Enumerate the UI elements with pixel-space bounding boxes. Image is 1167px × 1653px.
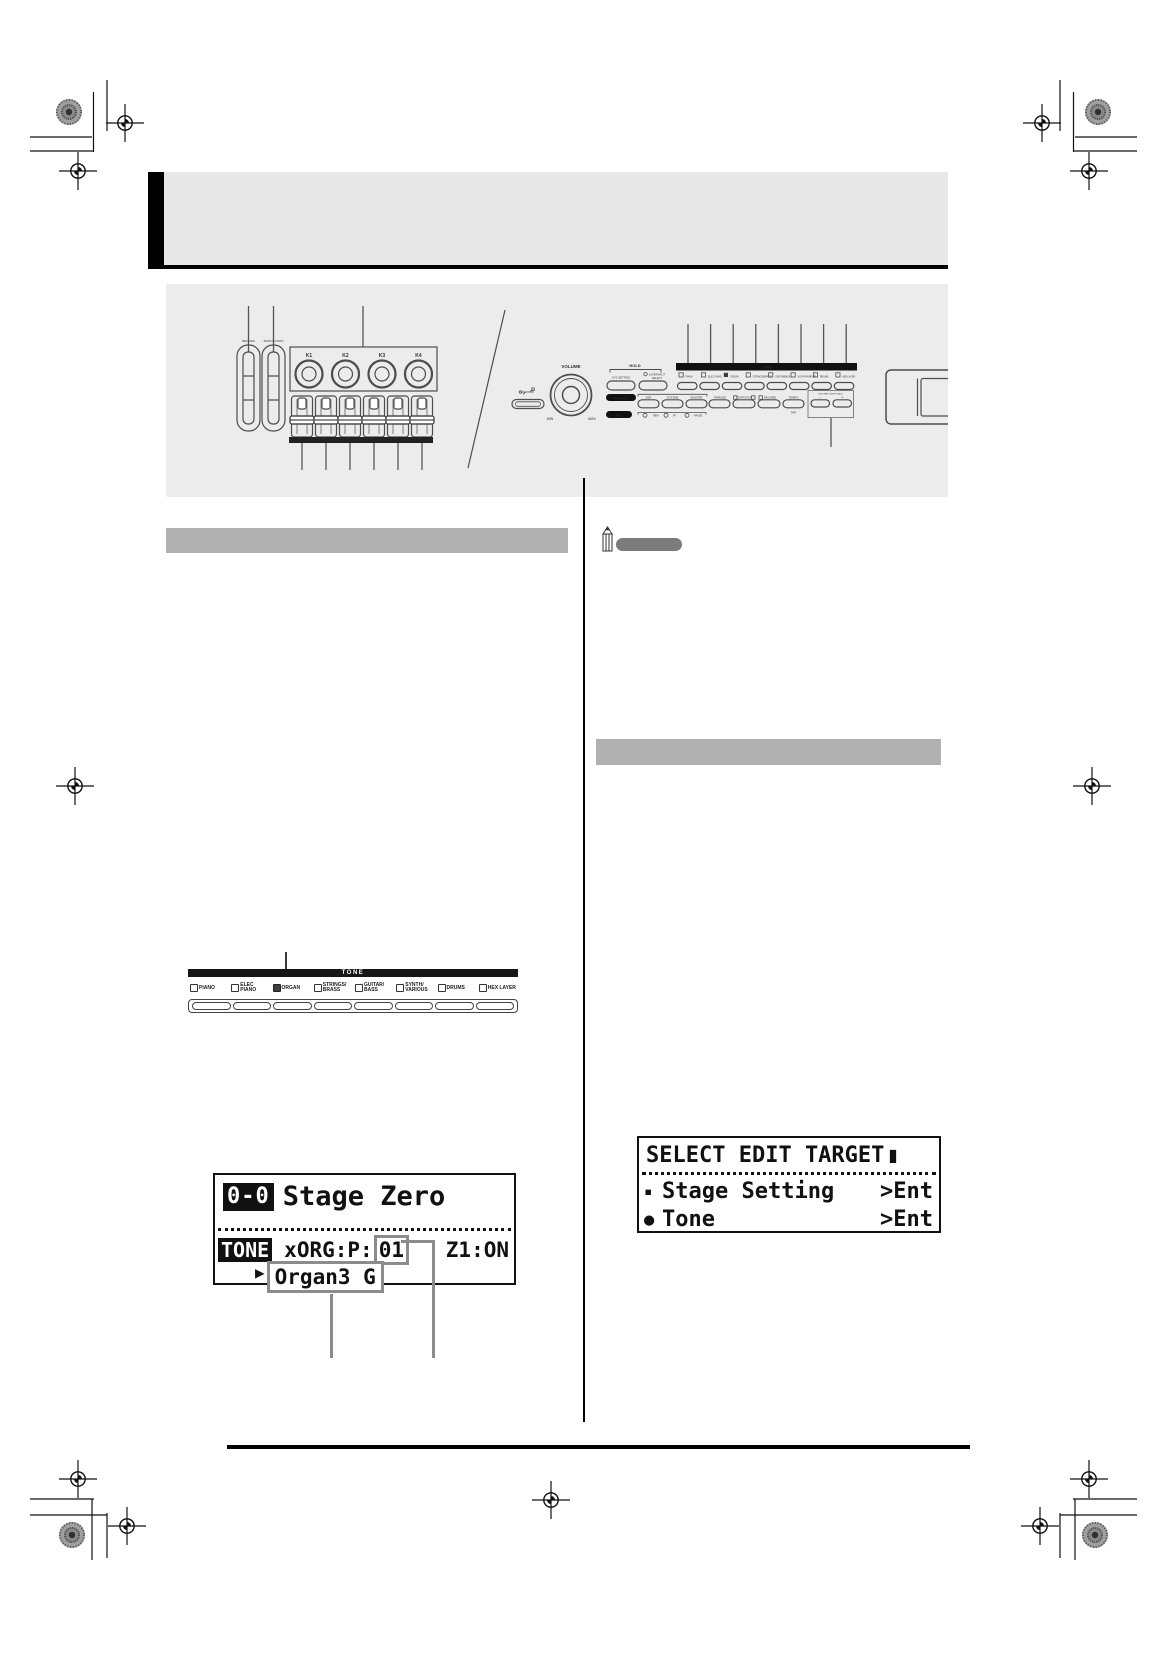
footer-rule [227, 1445, 970, 1449]
svg-text:TONE: TONE [763, 366, 772, 370]
regmark-mid-left [56, 767, 94, 805]
svg-text:PIANO: PIANO [686, 376, 693, 379]
lcd-tone-name-line: ▶ Organ3 G [255, 1261, 384, 1293]
usb-port [512, 388, 544, 409]
tone-label-elec-piano: ELECPIANO [229, 977, 270, 999]
svg-text:SELECT: SELECT [652, 376, 663, 380]
cursor-arrow: ▶ [255, 1261, 265, 1285]
note-label-bar [616, 538, 682, 551]
section-heading-left [166, 528, 568, 553]
volume-knob [551, 375, 592, 416]
svg-text:MODULATION: MODULATION [264, 339, 284, 343]
row-label: Stage Setting [662, 1179, 834, 1205]
led-checkbox [396, 984, 404, 992]
figure-callout-lines [249, 306, 847, 470]
tone-button [354, 1002, 393, 1010]
svg-text:SYSTEM: SYSTEM [667, 396, 679, 400]
led-checkbox [231, 984, 239, 992]
regmark-mid-right [1073, 767, 1111, 805]
tone-name-callout-box: Organ3 G [267, 1261, 384, 1293]
svg-text:FF: FF [673, 415, 677, 418]
tone-button [395, 1002, 434, 1010]
organ-led-on [724, 373, 728, 377]
zone-status: Z1:ON [446, 1238, 509, 1262]
tone-label-guitar-bass: GUITAR/BASS [353, 977, 394, 999]
svg-text:HOLD: HOLD [629, 363, 640, 368]
svg-text:BENDER: BENDER [242, 339, 255, 343]
edit-target-row-stage-setting: ▪ Stage Setting >Ent [644, 1179, 933, 1205]
svg-text:START/STOP: START/STOP [736, 397, 752, 400]
svg-text:K1: K1 [306, 353, 313, 359]
regmark-bottom-center [532, 1481, 570, 1519]
svg-text:REW: REW [653, 415, 659, 418]
svg-text:−: − [819, 396, 821, 400]
led-checkbox [355, 984, 363, 992]
callout-connector-v2 [330, 1294, 333, 1358]
tone-button [273, 1002, 312, 1010]
svg-text:SYS SETTING: SYS SETTING [612, 376, 631, 380]
chapter-header-tab [148, 172, 164, 265]
svg-text:PAUSE: PAUSE [694, 415, 703, 418]
lcd-title: SELECT EDIT TARGET▮ [646, 1143, 900, 1169]
led-checkbox [190, 984, 198, 992]
svg-text:TAP: TAP [791, 411, 797, 415]
modulation-wheel [262, 345, 285, 431]
svg-text:BALANCE: BALANCE [614, 396, 628, 400]
lcd-dotted-rule [218, 1228, 511, 1231]
block-cursor: ▮ [886, 1143, 899, 1168]
svg-text:EDIT/PART/STEP/TRACK: EDIT/PART/STEP/TRACK [819, 392, 844, 395]
column-divider [583, 478, 585, 1422]
svg-text:MIN: MIN [547, 417, 554, 421]
chapter-header-bar [148, 172, 948, 269]
tone-button [192, 1002, 231, 1010]
regmark-bottom-left [30, 1460, 146, 1560]
tone-button [233, 1002, 272, 1010]
tone-button [476, 1002, 515, 1010]
tone-strip-buttons [188, 999, 518, 1013]
row-marker: ▪ [644, 1179, 662, 1205]
lcd-dotted-rule [642, 1172, 936, 1175]
svg-text:K2: K2 [342, 353, 349, 359]
stage-number-badge: 0-0 [223, 1183, 274, 1211]
svg-text:+: + [841, 396, 843, 400]
stage-name: Stage Zero [283, 1182, 446, 1212]
row-action: >Ent [880, 1207, 933, 1233]
tone-strip-header: TONE [188, 969, 518, 977]
tone-label-synth-various: SYNTH/VARIOUS [394, 977, 435, 999]
tone-label-strings-brass: STRINGS/BRASS [312, 977, 353, 999]
tone-label-hex-layer: HEX LAYER [477, 977, 518, 999]
regmark-bottom-right [1021, 1460, 1137, 1560]
svg-text:K3: K3 [379, 353, 386, 359]
svg-text:MASTER: MASTER [691, 396, 703, 400]
edit-target-row-tone: ● Tone >Ent [644, 1207, 933, 1233]
tone-category: xORG:P: [284, 1238, 373, 1262]
tone-label-piano: PIANO [188, 977, 229, 999]
svg-text:K4: K4 [415, 353, 422, 359]
display-bezel [886, 370, 948, 424]
section-heading-right [596, 739, 941, 765]
svg-text:MAX: MAX [588, 417, 596, 421]
manual-page: BENDER MODULATION K1 K2 K3 K4 VOLUME MIN… [0, 0, 1167, 1653]
svg-text:ELEC PIANO: ELEC PIANO [708, 376, 722, 379]
row-marker-selected: ● [644, 1207, 662, 1233]
pencil-note-icon [599, 526, 616, 553]
svg-text:DSP: DSP [646, 396, 652, 400]
led-checkbox-on [273, 984, 281, 992]
tone-strip-labels: PIANO ELECPIANO ORGAN STRINGS/BRASS GUIT… [188, 977, 518, 999]
row-action: >Ent [880, 1179, 933, 1205]
regmark-top-right [1023, 80, 1137, 190]
svg-text:RECORD: RECORD [764, 396, 776, 400]
assignable-sliders [289, 396, 434, 443]
svg-text:LAYER/SPLIT: LAYER/SPLIT [649, 373, 666, 377]
tone-button [435, 1002, 474, 1010]
svg-text:PHRASE: PHRASE [714, 396, 726, 400]
lcd-stage-line: 0-0 Stage Zero [223, 1182, 445, 1212]
lcd-tone-screen: 0-0 Stage Zero TONE xORG:P: 01 Z1:ON ▶ O… [213, 1173, 516, 1285]
svg-text:MIDI: MIDI [616, 413, 622, 417]
tone-label-drums: DRUMS [436, 977, 477, 999]
panel-break-line [468, 310, 505, 468]
svg-text:TEMPO: TEMPO [789, 396, 800, 400]
keyboard-panel-figure: BENDER MODULATION K1 K2 K3 K4 VOLUME MIN… [166, 284, 948, 497]
svg-text:GUITAR/BASS: GUITAR/BASS [775, 376, 791, 379]
svg-text:DRUMS: DRUMS [820, 377, 829, 379]
svg-text:HEX LAYER: HEX LAYER [842, 376, 855, 379]
led-checkbox [314, 984, 322, 992]
svg-text:VOLUME: VOLUME [561, 364, 580, 369]
pitch-bend-wheel [237, 345, 260, 431]
tone-label-organ: ORGAN [271, 977, 312, 999]
svg-text:ORGAN: ORGAN [730, 376, 739, 379]
callout-connector-h [401, 1240, 435, 1243]
row-label: Tone [662, 1207, 715, 1233]
organ-button-callout-line [285, 952, 287, 970]
callout-connector-v1 [432, 1240, 435, 1358]
led-checkbox [479, 984, 487, 992]
led-checkbox [438, 984, 446, 992]
lcd-edit-target-screen: SELECT EDIT TARGET▮ ▪ Stage Setting >Ent… [637, 1136, 941, 1233]
svg-text:SYNTH/VARIOUS: SYNTH/VARIOUS [798, 376, 817, 379]
svg-text:STRINGS/BRASS: STRINGS/BRASS [753, 376, 772, 379]
tone-button [314, 1002, 353, 1010]
tone-row-label: TONE [218, 1238, 272, 1262]
tone-button-strip-figure: TONE PIANO ELECPIANO ORGAN STRINGS/BRASS… [188, 969, 518, 1013]
regmark-top-left [30, 80, 144, 190]
